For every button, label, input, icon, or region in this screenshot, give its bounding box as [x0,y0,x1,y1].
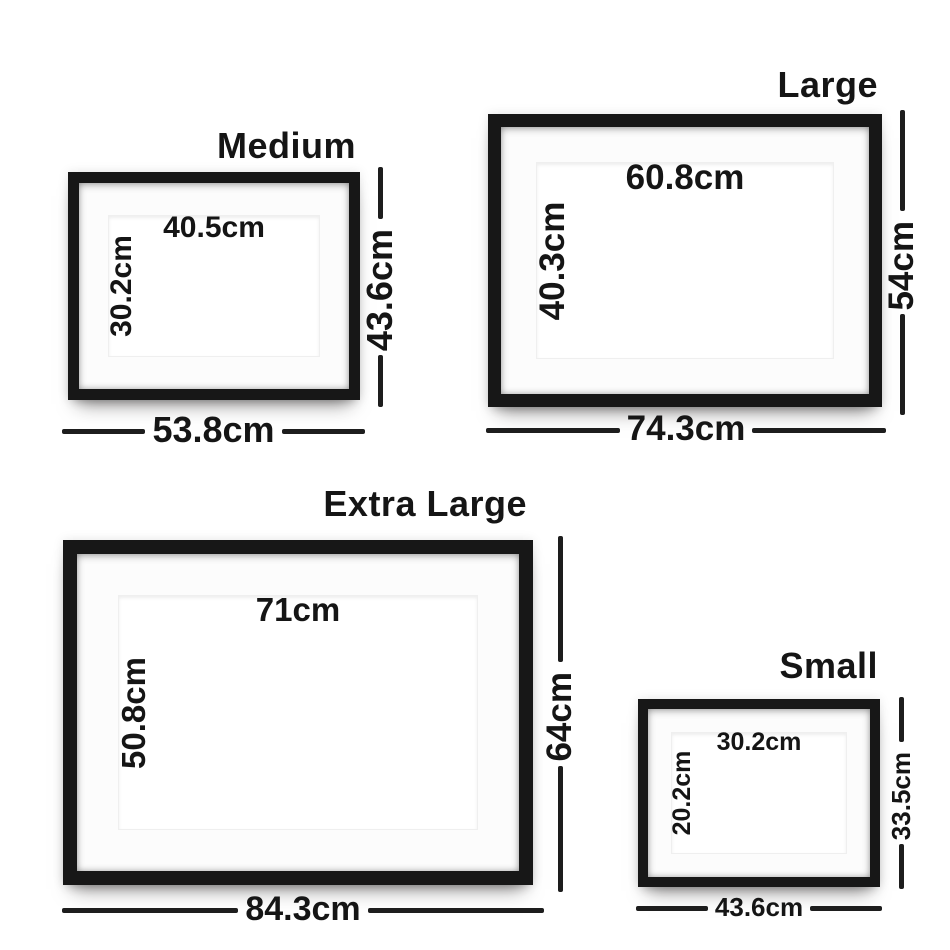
dimension-line-segment [378,355,383,407]
outer-width-dimension: 84.3cm [62,890,544,930]
dimension-line-segment [558,766,563,892]
outer-height-dimension: 54cm [882,110,922,415]
dimension-line-segment [899,844,904,889]
outer-height-label: 33.5cm [886,752,917,840]
size-title-medium: Medium [68,126,356,166]
frame-opening: 30.2cm 20.2cm [672,733,846,853]
frame-opening: 71cm 50.8cm [119,596,477,829]
size-title-small: Small [638,646,878,686]
outer-height-dimension: 43.6cm [360,167,400,407]
inner-height-label: 30.2cm [105,235,139,337]
outer-height-label: 54cm [882,221,922,311]
size-guide-canvas: Medium 40.5cm 30.2cm 43.6cm 53.8cm Large [0,0,950,950]
dimension-line-segment [558,536,563,662]
frame-mat: 60.8cm 40.3cm [501,127,869,394]
outer-width-dimension: 53.8cm [62,411,365,451]
dimension-line-segment [282,429,365,434]
dimension-line-segment [368,908,544,913]
dimension-line-segment [636,906,708,911]
picture-frame-small: 30.2cm 20.2cm [638,699,880,887]
dimension-line-segment [378,167,383,219]
frame-mat: 71cm 50.8cm [77,554,519,871]
inner-width-label: 71cm [256,591,340,629]
outer-height-label: 64cm [540,672,580,762]
inner-height-label: 50.8cm [115,657,153,769]
size-title-extra-large: Extra Large [63,484,527,524]
inner-width-label: 60.8cm [626,158,745,198]
outer-width-label: 74.3cm [627,409,746,449]
dimension-line-segment [62,908,238,913]
outer-width-label: 53.8cm [152,409,274,451]
picture-frame-large: 60.8cm 40.3cm [488,114,882,407]
dimension-line-segment [810,906,882,911]
outer-height-dimension: 33.5cm [881,697,921,889]
frame-mat: 40.5cm 30.2cm [79,183,349,389]
inner-width-label: 40.5cm [163,211,265,245]
dimension-line-segment [62,429,145,434]
dimension-line-segment [486,428,620,433]
dimension-line-segment [752,428,886,433]
dimension-line-segment [900,314,905,415]
dimension-line-segment [899,697,904,742]
inner-height-label: 40.3cm [533,201,573,320]
frame-opening: 60.8cm 40.3cm [537,163,833,358]
outer-height-dimension: 64cm [540,536,580,892]
outer-width-label: 84.3cm [245,890,360,929]
picture-frame-extra-large: 71cm 50.8cm [63,540,533,885]
size-title-large: Large [488,65,878,105]
picture-frame-medium: 40.5cm 30.2cm [68,172,360,400]
inner-height-label: 20.2cm [668,751,697,836]
outer-width-label: 43.6cm [715,892,803,923]
outer-width-dimension: 43.6cm [636,888,882,928]
outer-height-label: 43.6cm [359,229,401,351]
frame-mat: 30.2cm 20.2cm [648,709,870,877]
inner-width-label: 30.2cm [717,728,802,757]
frame-opening: 40.5cm 30.2cm [109,216,319,356]
dimension-line-segment [900,110,905,211]
outer-width-dimension: 74.3cm [486,410,886,450]
